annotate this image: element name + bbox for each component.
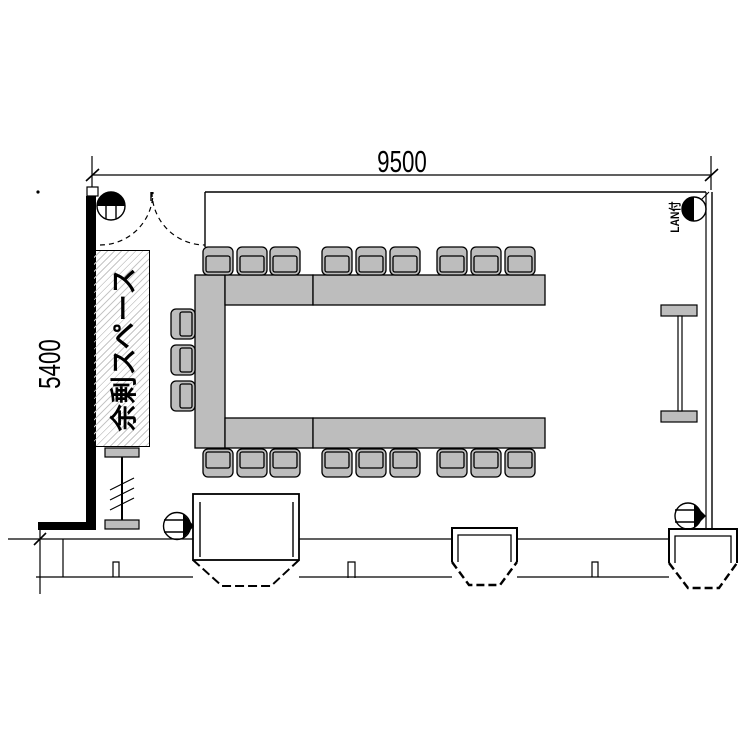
chair-seat xyxy=(240,452,264,468)
chair-seat xyxy=(206,256,230,272)
lan-port-label: LAN付 xyxy=(666,183,680,251)
conference-table-unit xyxy=(195,275,225,448)
wall-bottom-left-thick xyxy=(38,522,96,530)
outlet-symbol-bottom-left xyxy=(164,513,195,540)
lan-outlet-filled-half xyxy=(682,197,694,221)
conference-table-unit xyxy=(225,275,313,305)
bay-left-projection xyxy=(193,560,299,586)
outlet-wedge xyxy=(694,504,706,528)
conference-table-unit xyxy=(313,418,545,448)
chair-seat xyxy=(325,256,349,272)
chair-seat xyxy=(273,452,297,468)
ibeam-column-right xyxy=(661,305,697,422)
chair-seat xyxy=(393,452,417,468)
chair-seat xyxy=(240,256,264,272)
dimension-height-label: 5400 xyxy=(34,321,66,407)
chair-seat xyxy=(393,256,417,272)
window-mullion-1 xyxy=(113,562,119,577)
bay-window-right xyxy=(669,529,737,588)
chair-seat xyxy=(180,348,192,372)
bay-middle-projection xyxy=(452,562,517,585)
bay-window-middle xyxy=(452,528,517,585)
chair-seat xyxy=(180,384,192,408)
surplus-space-label: 余剰スペース xyxy=(102,266,141,431)
window-mullion-3 xyxy=(592,562,598,577)
chair-seat xyxy=(474,256,498,272)
conference-table-unit xyxy=(225,418,313,448)
bay-window-left xyxy=(193,494,299,586)
chair-seat xyxy=(440,256,464,272)
chair-seat xyxy=(440,452,464,468)
outlet-symbol-bottom-right xyxy=(675,503,706,529)
fixture-symbol-door xyxy=(97,192,125,220)
lan-outlet-symbol xyxy=(682,192,709,221)
fixture-filled-dome xyxy=(97,192,125,206)
chair-seat xyxy=(474,452,498,468)
conference-furniture xyxy=(171,247,545,477)
chair-seat xyxy=(180,312,192,336)
ibeam-column-left xyxy=(105,448,139,529)
floor-plan: 9500 5400 余剰スペース LAN付 xyxy=(0,0,750,750)
door-swing-arc-right xyxy=(152,192,205,245)
chair-seat xyxy=(359,452,383,468)
chair-seat xyxy=(273,256,297,272)
dimension-point xyxy=(36,190,39,193)
conference-table-unit xyxy=(313,275,545,305)
bay-right-projection xyxy=(669,563,737,588)
chair-seat xyxy=(206,452,230,468)
chair-seat xyxy=(508,452,532,468)
surplus-space-hatched-area: 余剰スペース xyxy=(93,250,150,447)
lan-outlet-tick xyxy=(701,192,709,200)
bottom-wall-band xyxy=(8,539,669,578)
chair-seat xyxy=(508,256,532,272)
dimension-width-label: 9500 xyxy=(366,146,438,177)
window-mullion-2 xyxy=(348,562,355,578)
chair-seat xyxy=(359,256,383,272)
chair-seat xyxy=(325,452,349,468)
wall-end-cap xyxy=(87,187,98,196)
